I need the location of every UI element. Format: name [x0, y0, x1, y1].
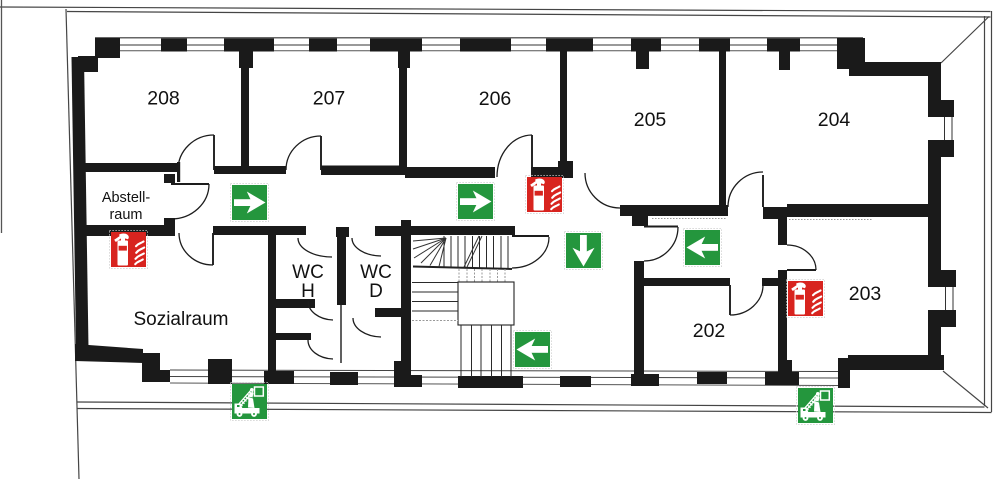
svg-text:205: 205	[634, 109, 667, 131]
svg-text:203: 203	[849, 283, 882, 305]
svg-text:Abstell-: Abstell-	[102, 190, 151, 206]
svg-text:206: 206	[479, 88, 512, 110]
svg-text:202: 202	[693, 320, 726, 342]
svg-text:H: H	[301, 281, 315, 302]
svg-text:WC: WC	[360, 262, 392, 283]
svg-text:208: 208	[147, 88, 180, 110]
svg-text:WC: WC	[292, 262, 324, 283]
svg-text:Sozialraum: Sozialraum	[133, 309, 228, 330]
svg-text:D: D	[369, 281, 383, 302]
svg-text:207: 207	[313, 88, 346, 110]
svg-text:raum: raum	[109, 207, 142, 223]
svg-text:204: 204	[818, 109, 851, 131]
